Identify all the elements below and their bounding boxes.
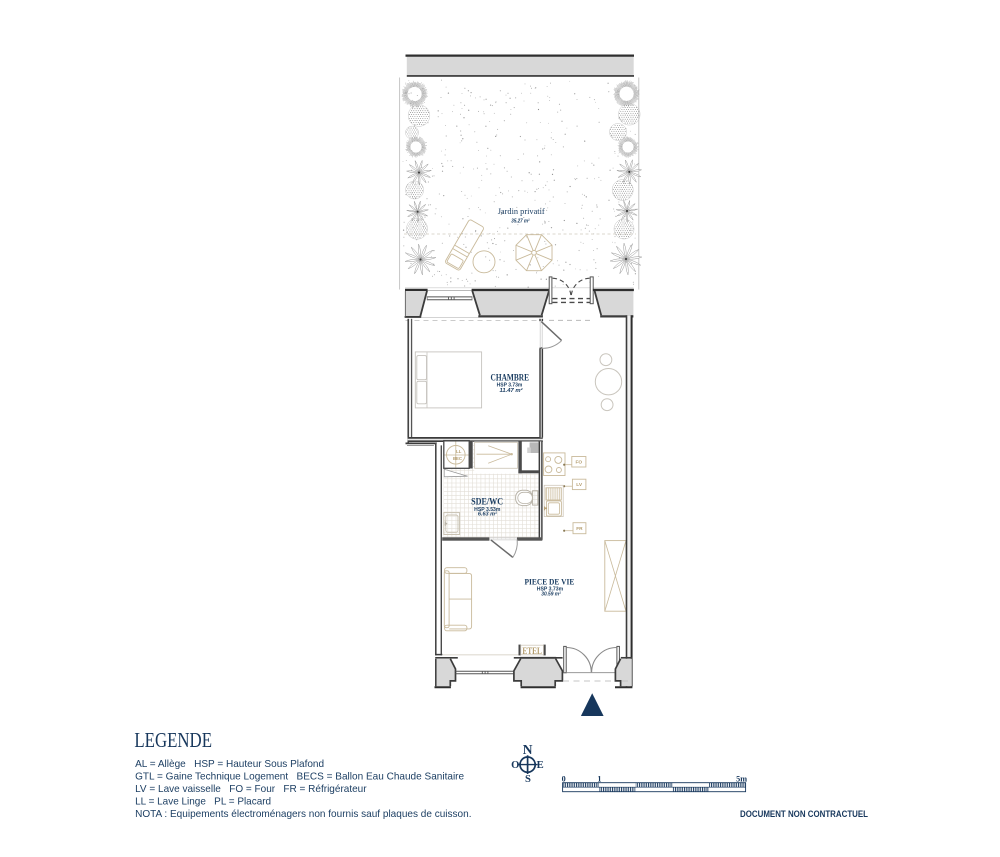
- svg-text:ETEL: ETEL: [522, 646, 542, 656]
- svg-text:11.47 m²: 11.47 m²: [500, 387, 523, 394]
- svg-text:Jardin privatif: Jardin privatif: [498, 206, 545, 216]
- svg-text:GTL = Gaine Technique Logement: GTL = Gaine Technique Logement BECS = Ba…: [135, 770, 464, 782]
- svg-text:AL = Allège HSP = Hauteur So: AL = Allège HSP = Hauteur Sous Plafond: [135, 758, 324, 770]
- svg-text:LV: LV: [576, 482, 583, 488]
- svg-text:NOTA : Equipements électroména: NOTA : Equipements électroménagers non f…: [135, 808, 471, 820]
- svg-text:0: 0: [562, 775, 566, 784]
- svg-text:E: E: [537, 760, 544, 771]
- svg-text:LV = Lave vaisselle FO = Fou: LV = Lave vaisselle FO = Four FR = Réfri…: [135, 783, 367, 795]
- svg-text:LEGENDE: LEGENDE: [134, 728, 212, 752]
- svg-text:O: O: [511, 760, 519, 771]
- svg-text:BEC: BEC: [453, 456, 462, 461]
- svg-text:FO: FO: [576, 460, 583, 466]
- svg-text:FR: FR: [576, 526, 583, 532]
- svg-text:LL = Lave Linge PL = Placard: LL = Lave Linge PL = Placard: [135, 796, 271, 808]
- svg-text:5m: 5m: [736, 775, 747, 784]
- svg-text:DOCUMENT NON CONTRACTUEL: DOCUMENT NON CONTRACTUEL: [740, 809, 868, 820]
- svg-text:35.27 m²: 35.27 m²: [511, 218, 529, 225]
- svg-text:SDE/WC: SDE/WC: [471, 497, 503, 507]
- svg-text:LL: LL: [456, 449, 462, 454]
- svg-text:PIECE DE VIE: PIECE DE VIE: [525, 577, 575, 587]
- svg-text:6.63 m²: 6.63 m²: [478, 510, 497, 517]
- svg-text:1: 1: [597, 775, 601, 784]
- svg-text:S: S: [525, 774, 531, 785]
- svg-text:N: N: [523, 742, 533, 757]
- svg-text:30.59 m²: 30.59 m²: [541, 590, 561, 597]
